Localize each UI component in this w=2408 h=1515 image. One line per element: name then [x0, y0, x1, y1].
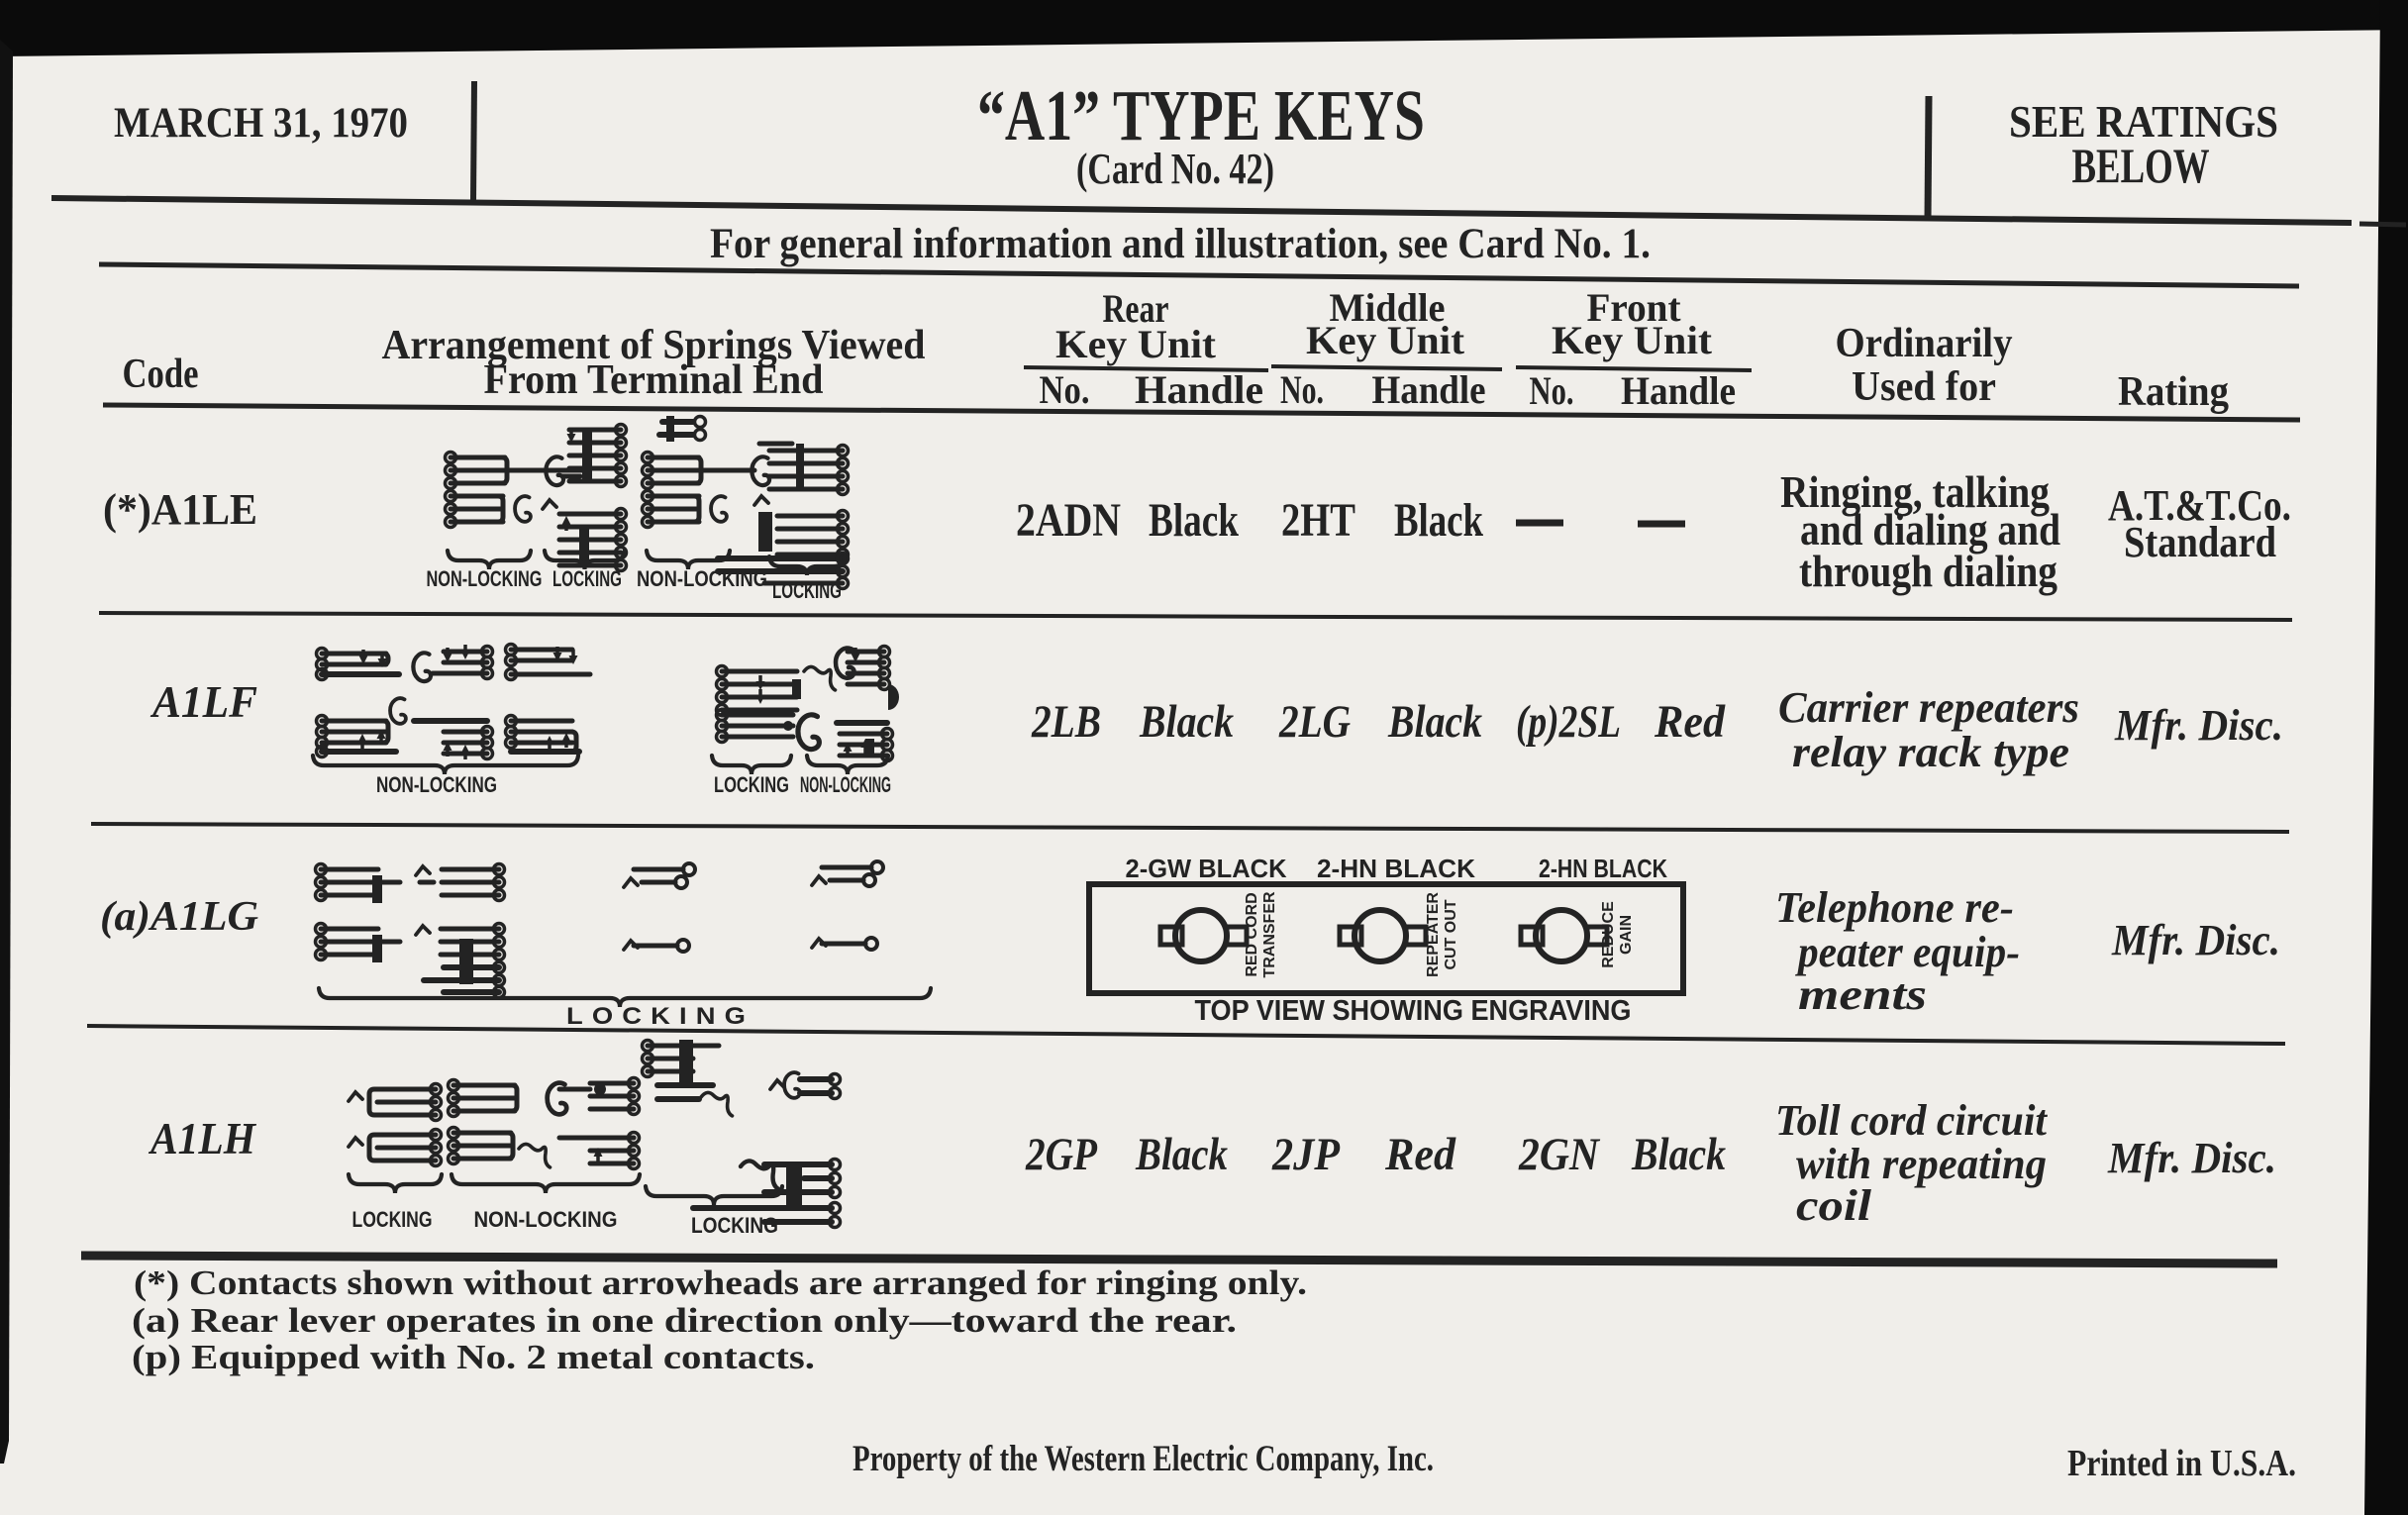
svg-text:through dialing: through dialing [1799, 546, 2057, 596]
svg-text:TRANSFER: TRANSFER [1261, 891, 1278, 978]
svg-text:A1LF: A1LF [150, 677, 257, 727]
svg-text:LOCKING: LOCKING [772, 578, 842, 603]
svg-text:Ordinarily: Ordinarily [1836, 321, 2013, 366]
svg-text:Telephone re-: Telephone re- [1775, 883, 2014, 932]
svg-text:(p) Equipped with No. 2 metal: (p) Equipped with No. 2 metal contacts. [132, 1338, 815, 1376]
svg-text:(Card No. 42): (Card No. 42) [1076, 145, 1274, 193]
svg-text:relay rack type: relay rack type [1792, 728, 2069, 776]
svg-text:LOCKING: LOCKING [552, 566, 622, 591]
svg-text:Red: Red [1654, 696, 1726, 748]
svg-text:Key Unit: Key Unit [1055, 322, 1217, 366]
svg-text:2GP: 2GP [1025, 1129, 1098, 1180]
svg-text:REDUCE: REDUCE [1600, 901, 1617, 968]
svg-text:NON-LOCKING: NON-LOCKING [474, 1207, 618, 1232]
svg-text:Mfr. Disc.: Mfr. Disc. [2111, 916, 2280, 964]
svg-text:2-HN BLACK: 2-HN BLACK [1317, 854, 1475, 883]
svg-text:2JP: 2JP [1271, 1129, 1341, 1180]
svg-text:LOCKING: LOCKING [352, 1207, 433, 1232]
svg-text:GAIN: GAIN [1618, 915, 1635, 955]
svg-text:NON-LOCKING: NON-LOCKING [637, 566, 767, 591]
svg-text:LOCKING: LOCKING [714, 772, 789, 797]
svg-text:2-GW BLACK: 2-GW BLACK [1126, 854, 1287, 883]
svg-text:peater equip-: peater equip- [1794, 928, 2020, 976]
svg-text:LOCKING: LOCKING [691, 1213, 778, 1238]
svg-text:Red: Red [1384, 1129, 1456, 1180]
svg-text:(a)A1LG: (a)A1LG [100, 894, 258, 940]
svg-text:(*)A1LE: (*)A1LE [103, 485, 257, 534]
svg-text:(p)2SL: (p)2SL [1516, 696, 1621, 748]
svg-text:Key Unit: Key Unit [1552, 318, 1713, 362]
svg-text:From Terminal End: From Terminal End [484, 357, 824, 403]
svg-text:Key Unit: Key Unit [1306, 318, 1465, 362]
svg-text:NON-LOCKING: NON-LOCKING [376, 772, 497, 797]
svg-text:BELOW: BELOW [2072, 138, 2210, 193]
svg-text:Property of the Western Electr: Property of the Western Electric Company… [853, 1439, 1434, 1479]
svg-text:Black: Black [1387, 696, 1482, 748]
svg-text:No.: No. [1280, 367, 1324, 412]
svg-text:(*) Contacts shown without arr: (*) Contacts shown without arrowheads ar… [134, 1263, 1307, 1302]
svg-text:Handle: Handle [1621, 368, 1736, 413]
svg-text:No.: No. [1530, 368, 1574, 413]
svg-text:For general information and il: For general information and illustration… [710, 221, 1651, 267]
svg-text:Printed in U.S.A.: Printed in U.S.A. [2067, 1443, 2296, 1484]
svg-text:Mfr. Disc.: Mfr. Disc. [2107, 1134, 2276, 1182]
svg-text:CUT OUT: CUT OUT [1443, 899, 1459, 969]
svg-text:Carrier repeaters: Carrier repeaters [1778, 683, 2079, 732]
svg-text:2-HN BLACK: 2-HN BLACK [1539, 854, 1667, 883]
svg-text:2HT: 2HT [1281, 494, 1355, 547]
svg-text:Handle: Handle [1372, 367, 1486, 412]
svg-text:Black: Black [1139, 696, 1234, 748]
svg-text:Black: Black [1394, 494, 1483, 547]
svg-text:Mfr. Disc.: Mfr. Disc. [2114, 701, 2283, 750]
svg-text:Black: Black [1149, 494, 1239, 547]
svg-text:Black: Black [1631, 1129, 1726, 1180]
svg-text:Used for: Used for [1852, 364, 1996, 410]
svg-text:Rating: Rating [2118, 369, 2229, 415]
svg-text:NON-LOCKING: NON-LOCKING [427, 566, 543, 591]
svg-text:ments: ments [1798, 970, 1927, 1019]
svg-text:2GN: 2GN [1518, 1129, 1601, 1180]
svg-text:(a) Rear lever operates in one: (a) Rear lever operates in one direction… [132, 1301, 1237, 1340]
svg-text:Code: Code [123, 352, 199, 397]
svg-text:Handle: Handle [1135, 367, 1263, 412]
svg-text:RED CORD: RED CORD [1244, 892, 1260, 976]
svg-text:MARCH 31, 1970: MARCH 31, 1970 [114, 100, 408, 147]
svg-text:TOP VIEW SHOWING ENGRAVING: TOP VIEW SHOWING ENGRAVING [1195, 995, 1632, 1027]
svg-text:REPEATER: REPEATER [1425, 892, 1442, 977]
svg-text:Standard: Standard [2124, 518, 2276, 566]
svg-text:2ADN: 2ADN [1016, 494, 1121, 547]
svg-text:2LG: 2LG [1278, 696, 1351, 748]
svg-text:Toll cord circuit: Toll cord circuit [1775, 1096, 2049, 1145]
svg-text:NON-LOCKING: NON-LOCKING [800, 772, 891, 797]
svg-text:“A1” TYPE KEYS: “A1” TYPE KEYS [977, 75, 1425, 155]
svg-text:No.: No. [1040, 367, 1090, 412]
svg-text:2LB: 2LB [1031, 696, 1101, 748]
svg-text:Black: Black [1135, 1129, 1228, 1180]
svg-text:coil: coil [1796, 1181, 1872, 1230]
svg-text:LOCKING: LOCKING [566, 1003, 754, 1030]
svg-text:A1LH: A1LH [148, 1114, 257, 1163]
